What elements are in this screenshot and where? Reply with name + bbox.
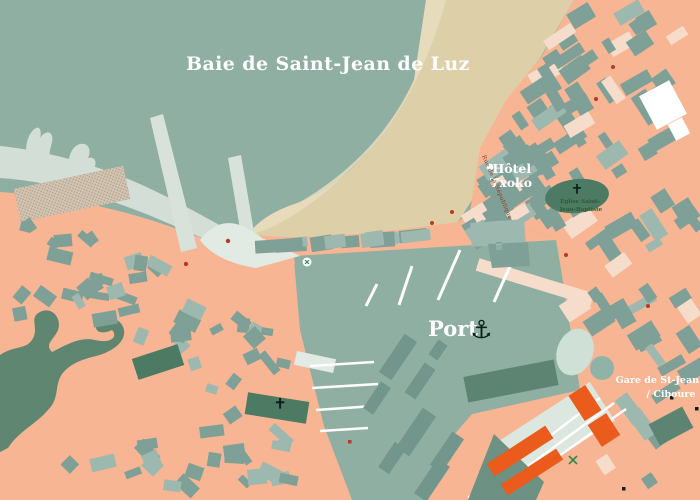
poi-marker-icon [430, 221, 434, 225]
poi-marker-icon [450, 210, 454, 214]
building [365, 230, 385, 246]
poi-marker-icon [564, 253, 568, 257]
building [324, 234, 346, 249]
notched-building [488, 242, 530, 268]
micro-marker-icon [622, 487, 626, 491]
building [207, 452, 222, 468]
building [247, 468, 268, 485]
building [12, 306, 28, 322]
map-container: Baie de Saint-Jean de Luz Port ⚓ Hôtel T… [0, 0, 700, 500]
building [133, 255, 148, 272]
anchor-icon: ⚓ [470, 315, 492, 344]
park-circle [590, 356, 614, 380]
poi-marker-icon [184, 262, 188, 266]
poi-marker-icon [226, 239, 230, 243]
building [163, 479, 182, 492]
poi-marker-icon [594, 97, 598, 101]
building [90, 273, 104, 286]
map-canvas[interactable]: Baie de Saint-Jean de Luz Port ⚓ Hôtel T… [0, 0, 700, 500]
poi-marker-icon [611, 65, 615, 69]
micro-marker-icon [695, 407, 699, 411]
micro-marker-icon [348, 440, 352, 444]
poi-marker-icon [646, 304, 650, 308]
bay-title-label: Baie de Saint-Jean de Luz [186, 53, 470, 75]
